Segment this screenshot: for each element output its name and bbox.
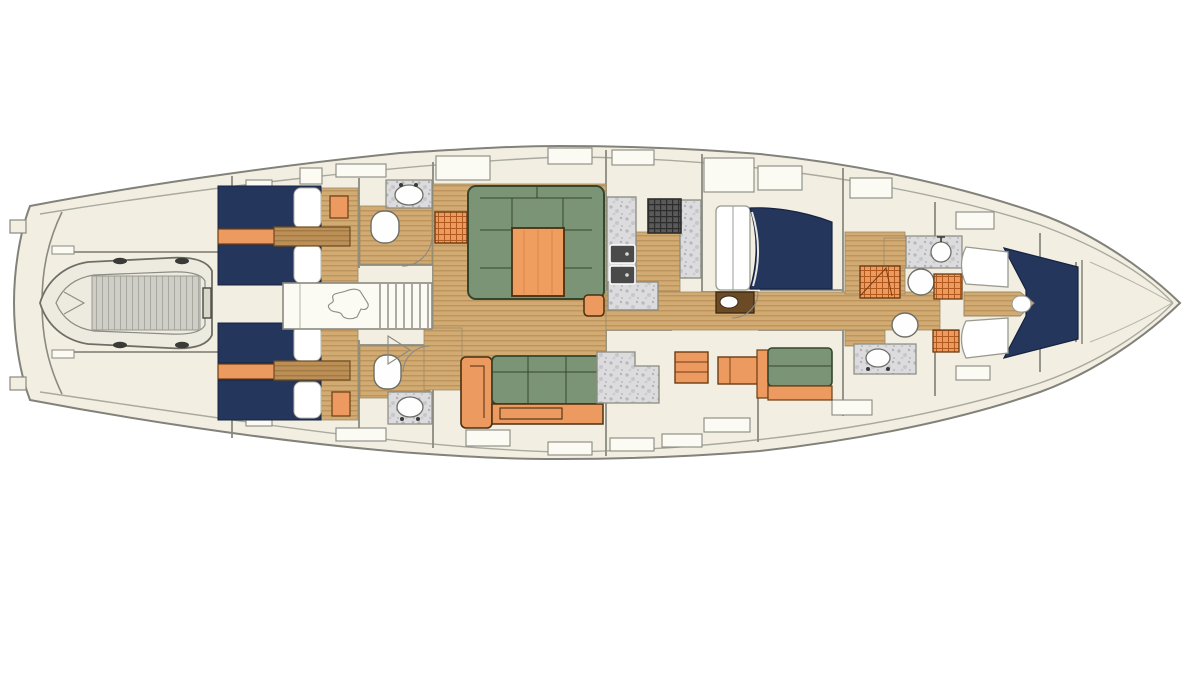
shower-grate-orange xyxy=(934,274,962,299)
transom-step-top xyxy=(10,220,26,233)
dinghy-floorboards xyxy=(92,276,200,330)
shelf-vberth-port xyxy=(884,238,908,268)
berth-pillow xyxy=(294,382,321,418)
dinghy-cleat xyxy=(113,258,127,264)
companionway: Companionway stairs and engine room hatc… xyxy=(283,283,432,329)
berth-base-orange xyxy=(768,386,832,400)
owner-cabin: Forward owner's cabin with V-berth xyxy=(962,247,1079,358)
salon-port: Salon U-shaped settee with table, port s… xyxy=(468,186,604,316)
berth-pillow xyxy=(294,325,321,361)
dinghy-transom xyxy=(203,288,211,318)
floor-salon-lower xyxy=(424,328,462,390)
shower-grate-orange xyxy=(933,330,959,352)
berth-pillow xyxy=(294,245,321,283)
double-berth-navy xyxy=(750,208,832,289)
vberth-center-step xyxy=(1012,296,1031,312)
deck-plan-canvas: Yacht hull outline Stern transom and swi… xyxy=(0,0,1200,675)
sink-basin xyxy=(395,185,423,205)
deck-plan-svg: Yacht hull outline Stern transom and swi… xyxy=(0,0,1200,675)
berth-rail-orange xyxy=(757,350,768,398)
dinghy-cleat xyxy=(175,258,189,264)
vberth-pillow xyxy=(962,247,1009,287)
shower-grate-orange xyxy=(860,266,900,298)
dinghy-cleat xyxy=(113,342,127,348)
cabinet-orange xyxy=(675,352,708,383)
vberth-pillow xyxy=(962,318,1009,358)
galley-counter-marble xyxy=(608,282,658,310)
transom-step-bottom xyxy=(10,377,26,390)
salon-stool-orange xyxy=(584,295,604,316)
berth-step-teak xyxy=(274,361,350,380)
cabinet-orange xyxy=(718,357,760,384)
dinghy: Inflatable tender (RIB) stowed in garage xyxy=(40,258,212,349)
berth-step-teak xyxy=(274,227,350,246)
bench-green xyxy=(492,356,602,404)
cabin-locker-orange xyxy=(332,392,350,416)
sink-basin xyxy=(931,242,951,262)
faucet xyxy=(886,367,890,371)
hatch-grate-orange xyxy=(435,212,467,243)
salon-starboard: Salon straight settee with armchair, sta… xyxy=(461,356,603,428)
berth-divider-orange xyxy=(218,229,275,244)
armchair-orange xyxy=(461,357,492,428)
toilet xyxy=(371,211,399,243)
toilet xyxy=(892,313,918,337)
faucet xyxy=(399,183,403,187)
cabin-locker-orange xyxy=(330,196,348,218)
sink-basin xyxy=(866,349,890,367)
berth-pillow xyxy=(294,188,321,228)
dinghy-cleat xyxy=(175,342,189,348)
sink-basin xyxy=(397,397,423,417)
single-berth-green xyxy=(768,348,832,386)
toilet xyxy=(908,269,934,295)
faucet xyxy=(866,367,870,371)
bench-base-orange xyxy=(492,404,603,424)
galley-counter-marble xyxy=(680,200,701,278)
faucet xyxy=(400,417,404,421)
berth-divider-orange xyxy=(218,364,275,379)
vanity-basin xyxy=(720,296,738,308)
galley-oven-grill xyxy=(648,199,681,233)
faucet xyxy=(416,417,420,421)
faucet xyxy=(414,183,418,187)
